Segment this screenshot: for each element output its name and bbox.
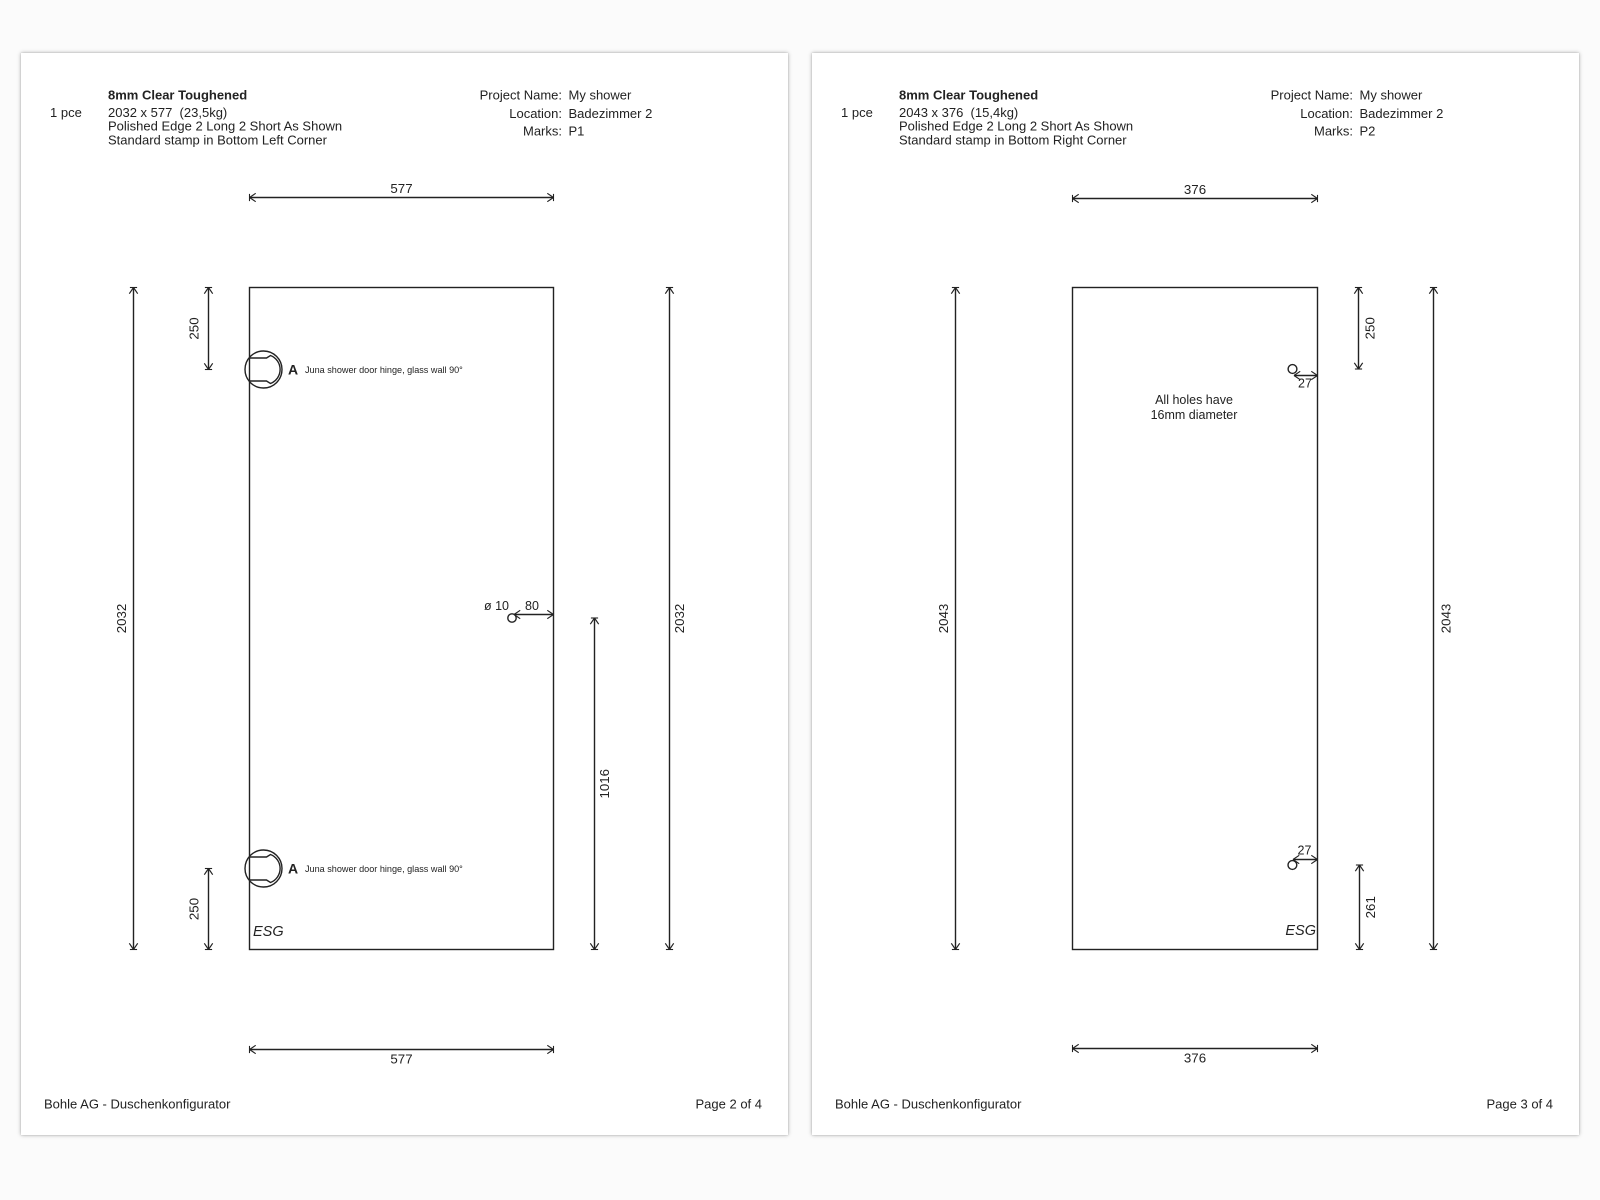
svg-text:Juna shower door hinge, glass: Juna shower door hinge, glass wall 90°	[305, 365, 463, 375]
svg-text:ESG: ESG	[253, 924, 284, 940]
svg-text:A: A	[288, 861, 298, 877]
svg-text:Juna shower door hinge, glass: Juna shower door hinge, glass wall 90°	[305, 864, 463, 874]
svg-text:2032: 2032	[672, 604, 687, 634]
svg-text:261: 261	[1363, 896, 1378, 918]
svg-text:My shower: My shower	[569, 88, 633, 103]
svg-text:376: 376	[1184, 182, 1206, 197]
svg-text:8mm Clear Toughened: 8mm Clear Toughened	[108, 88, 247, 103]
svg-text:250: 250	[186, 898, 201, 920]
svg-text:P2: P2	[1360, 124, 1376, 139]
svg-text:27: 27	[1298, 376, 1312, 390]
svg-text:P1: P1	[569, 124, 585, 139]
svg-text:Project Name:: Project Name:	[1271, 88, 1353, 103]
svg-text:2032: 2032	[114, 604, 129, 634]
svg-text:Badezimmer 2: Badezimmer 2	[569, 106, 653, 121]
svg-text:ESG: ESG	[1285, 923, 1316, 939]
svg-text:Standard stamp in Bottom Left: Standard stamp in Bottom Left Corner	[108, 132, 328, 147]
svg-text:ø 10: ø 10	[484, 599, 509, 613]
svg-text:All holes have: All holes have	[1155, 393, 1233, 407]
svg-text:250: 250	[1362, 317, 1377, 339]
svg-text:16mm diameter: 16mm diameter	[1151, 408, 1238, 422]
svg-text:Marks:: Marks:	[1314, 124, 1353, 139]
svg-text:Badezimmer 2: Badezimmer 2	[1360, 106, 1444, 121]
svg-text:Bohle AG - Duschenkonfigurator: Bohle AG - Duschenkonfigurator	[44, 1097, 231, 1112]
svg-text:Location:: Location:	[509, 106, 562, 121]
svg-text:27: 27	[1298, 844, 1312, 858]
svg-text:Page 3 of 4: Page 3 of 4	[1487, 1097, 1554, 1112]
svg-text:2043: 2043	[936, 604, 951, 634]
svg-text:My shower: My shower	[1360, 88, 1424, 103]
svg-text:Page 2 of 4: Page 2 of 4	[696, 1097, 763, 1112]
svg-text:577: 577	[390, 181, 412, 196]
svg-text:376: 376	[1184, 1051, 1206, 1066]
svg-text:1 pce: 1 pce	[50, 105, 82, 120]
svg-text:Marks:: Marks:	[523, 124, 562, 139]
svg-text:1 pce: 1 pce	[841, 105, 873, 120]
svg-text:1016: 1016	[597, 769, 612, 799]
svg-text:A: A	[288, 362, 298, 378]
svg-text:Standard stamp in Bottom Right: Standard stamp in Bottom Right Corner	[899, 132, 1127, 147]
svg-text:80: 80	[525, 599, 539, 613]
svg-text:250: 250	[186, 317, 201, 339]
svg-text:577: 577	[390, 1052, 412, 1067]
svg-text:2043: 2043	[1438, 604, 1453, 634]
svg-text:Bohle AG - Duschenkonfigurator: Bohle AG - Duschenkonfigurator	[835, 1097, 1022, 1112]
svg-text:8mm Clear Toughened: 8mm Clear Toughened	[899, 88, 1038, 103]
svg-text:Project Name:: Project Name:	[480, 88, 562, 103]
svg-text:Location:: Location:	[1300, 106, 1353, 121]
